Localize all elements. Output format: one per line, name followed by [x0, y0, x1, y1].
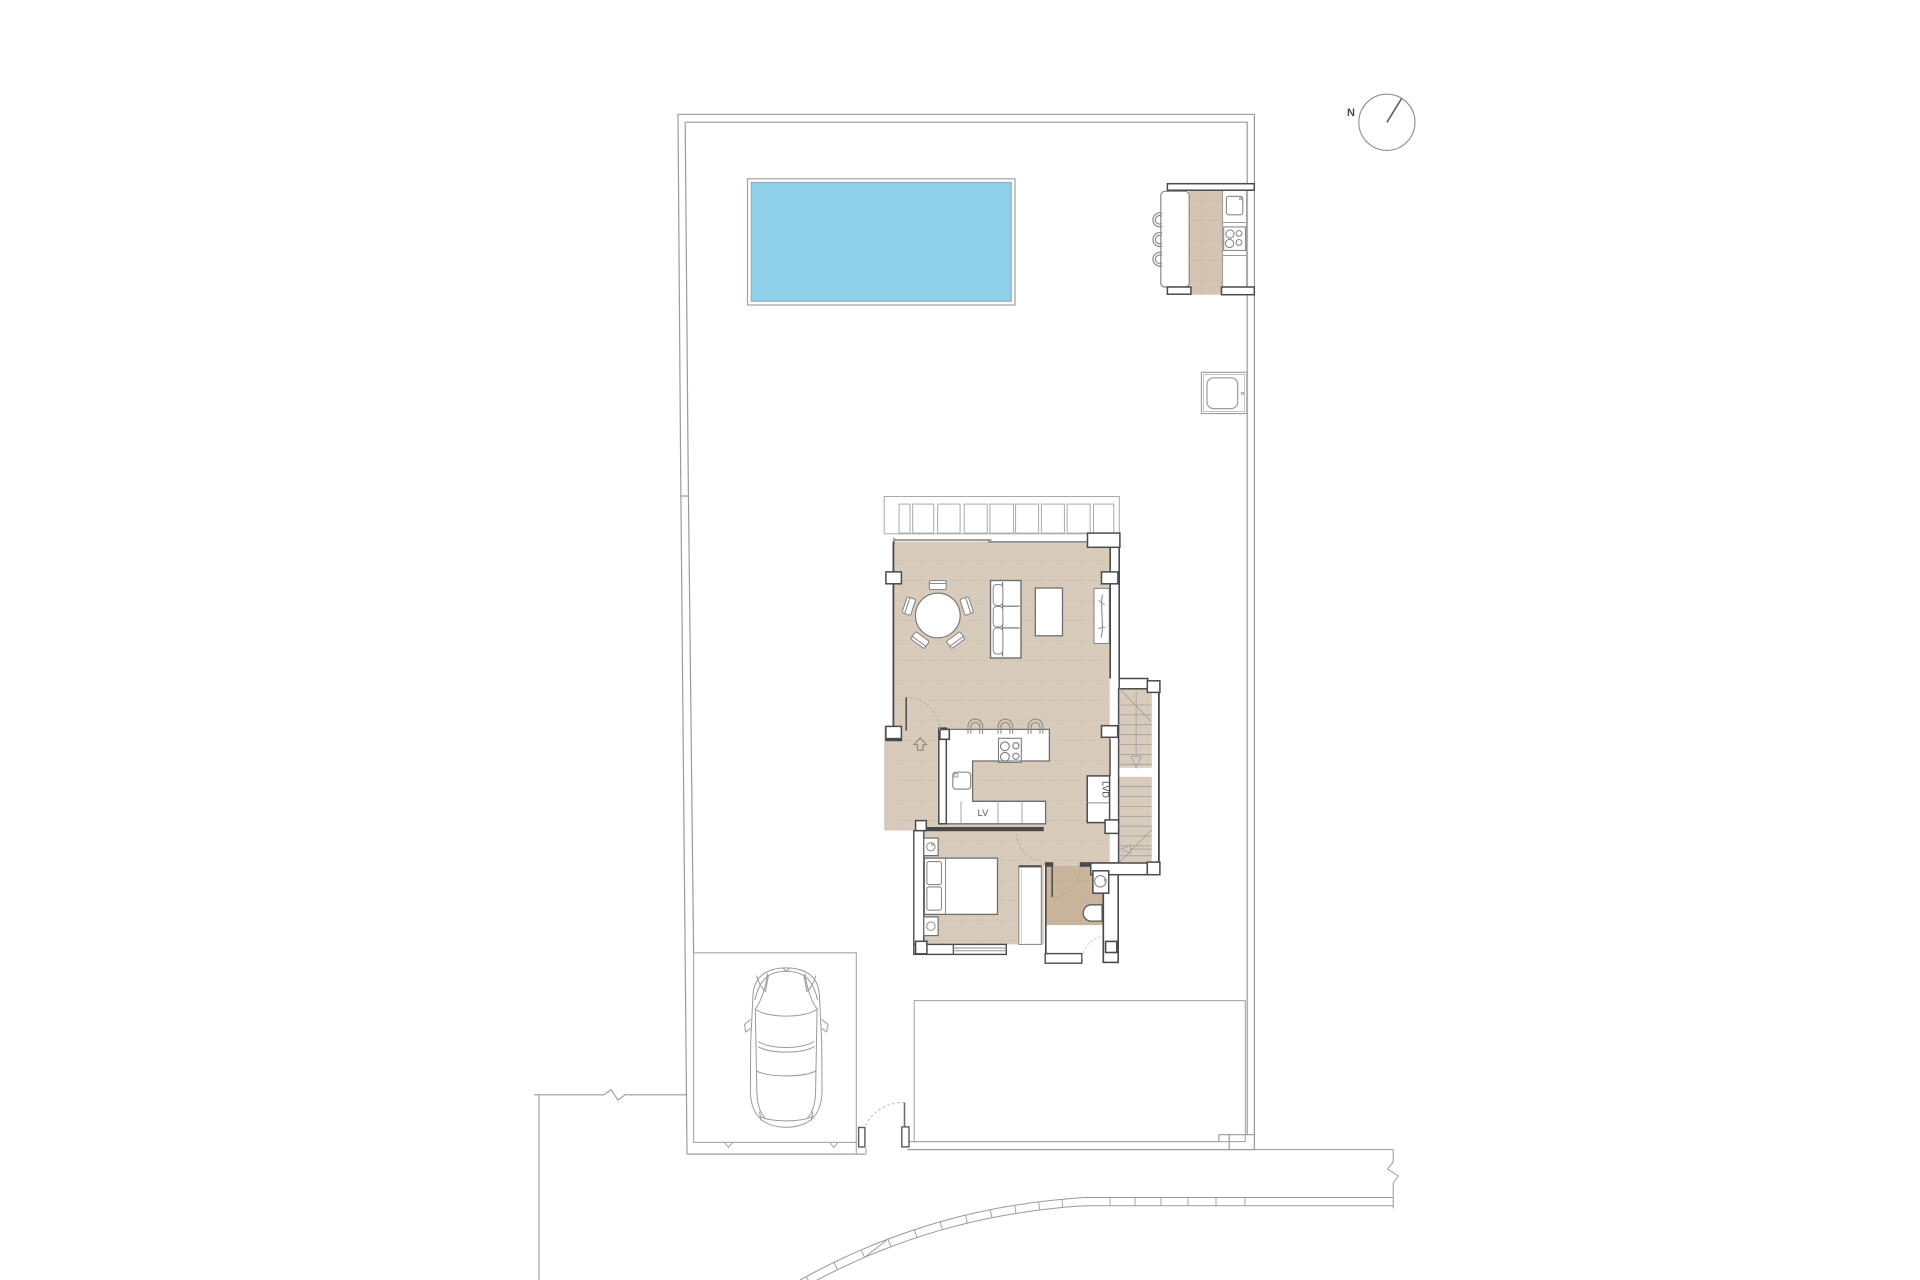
svg-text:LVD: LVD [1101, 781, 1111, 798]
svg-text:N: N [1347, 107, 1355, 119]
svg-text:LV: LV [978, 808, 990, 819]
